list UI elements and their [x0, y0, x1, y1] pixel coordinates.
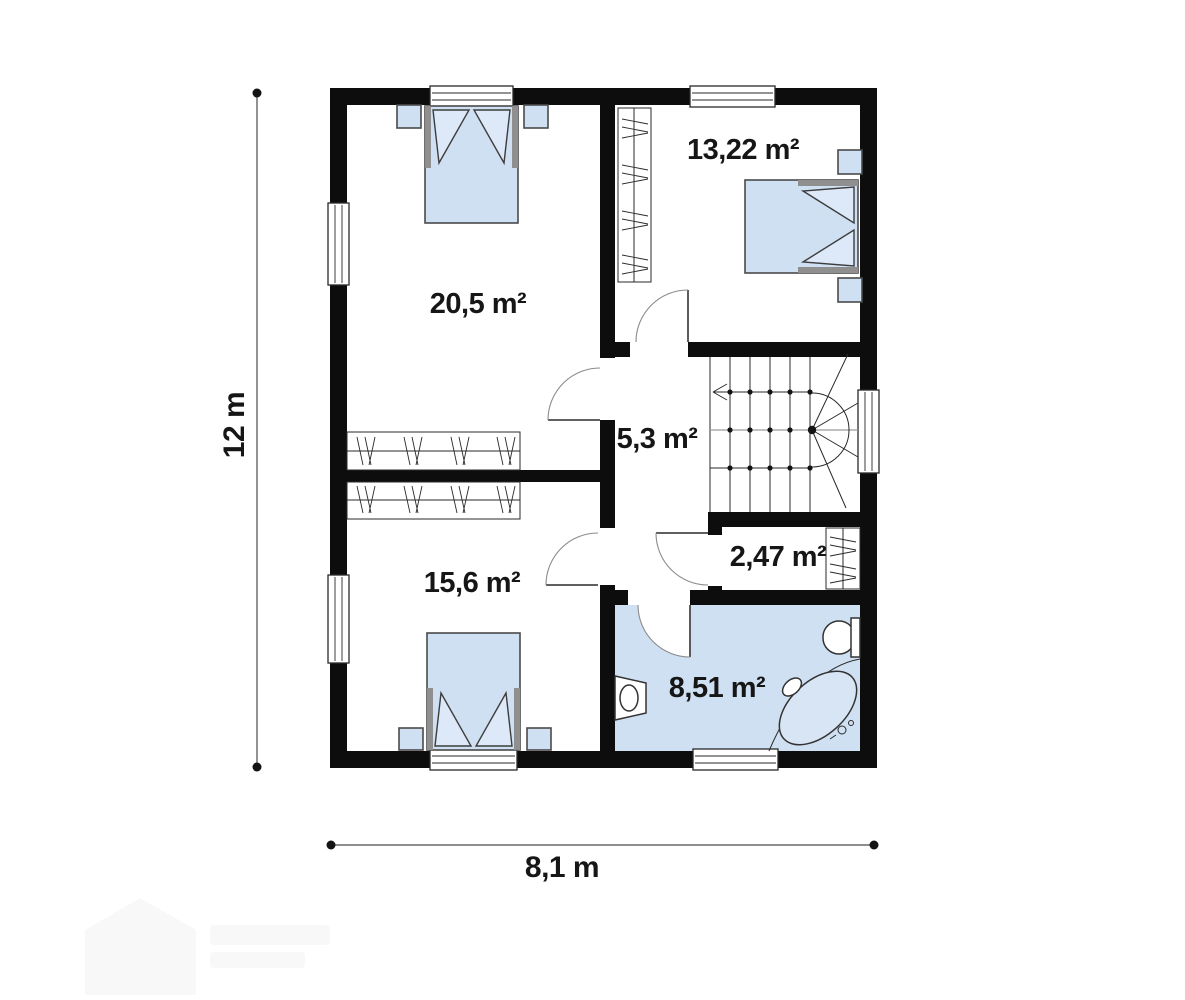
wardrobe-closet: [826, 528, 860, 589]
window-bottom-bathroom: [693, 749, 778, 770]
outer-wall-left: [330, 88, 347, 768]
inner-wall-closet-left-upper: [708, 527, 722, 535]
floor-plan-page: 20,5 m² 13,22 m² 5,3 m² 2,47 m² 15,6 m² …: [0, 0, 1185, 1000]
room-label-bathroom: 8,51 m²: [669, 672, 766, 704]
window-top-bedroom1: [430, 86, 513, 107]
sink: [615, 676, 646, 720]
outer-wall-top: [330, 88, 877, 105]
bed-bedroom3: [427, 633, 520, 750]
inner-wall-closet-left-lower: [708, 586, 722, 605]
staircase: [710, 354, 858, 512]
floor-plan-drawing: 20,5 m² 13,22 m² 5,3 m² 2,47 m² 15,6 m² …: [0, 0, 1185, 1000]
stair-winder-center: [808, 426, 816, 434]
window-bottom-bedroom3: [430, 749, 517, 770]
dimension-horizontal: 8,1 m: [327, 841, 879, 885]
watermark-logo: [85, 898, 330, 995]
inner-wall-below-stairs: [708, 512, 860, 527]
nightstand-bedroom2-bottom: [838, 278, 862, 302]
dimension-label-height: 12 m: [218, 392, 251, 458]
inner-wall-center-middle: [600, 420, 615, 528]
inner-wall-center-upper: [600, 105, 615, 358]
door-bedroom1: [548, 368, 600, 420]
nightstand-bedroom3-right: [527, 728, 551, 750]
inner-wall-bedroom2-bottom: [688, 342, 860, 357]
nightstand-bedroom2-top: [838, 150, 862, 174]
wardrobe-bedroom2: [618, 108, 651, 282]
inner-wall-bedroom2-stub: [615, 342, 630, 357]
window-left-bedroom3: [328, 575, 349, 663]
dimension-vertical: 12 m: [218, 89, 262, 772]
inner-wall-bathroom-top-left: [615, 590, 628, 605]
bed-bedroom2: [745, 180, 858, 273]
room-label-bedroom1: 20,5 m²: [430, 288, 527, 320]
dimension-label-width: 8,1 m: [525, 851, 599, 884]
wardrobe-bedroom3-top: [347, 482, 520, 519]
door-closet: [656, 533, 708, 585]
nightstand-bedroom1-right: [524, 105, 548, 128]
inner-wall-center-lower: [600, 585, 615, 751]
door-bedroom2: [636, 290, 688, 342]
room-label-bedroom2: 13,22 m²: [687, 134, 800, 166]
window-top-bedroom2: [690, 86, 775, 107]
window-right-stairs: [858, 390, 879, 473]
wardrobe-bedroom1-bottom: [347, 432, 520, 470]
door-bedroom3: [546, 533, 598, 585]
room-label-closet: 2,47 m²: [730, 541, 827, 573]
nightstand-bedroom1-left: [397, 105, 421, 128]
outer-wall-bottom: [330, 751, 877, 768]
bed-bedroom1: [425, 106, 518, 223]
nightstand-bedroom3-left: [399, 728, 423, 750]
inner-wall-between-bedrooms: [347, 470, 600, 482]
room-label-hall: 5,3 m²: [617, 423, 699, 455]
window-left-bedroom1: [328, 203, 349, 285]
room-label-bedroom3: 15,6 m²: [424, 567, 521, 599]
